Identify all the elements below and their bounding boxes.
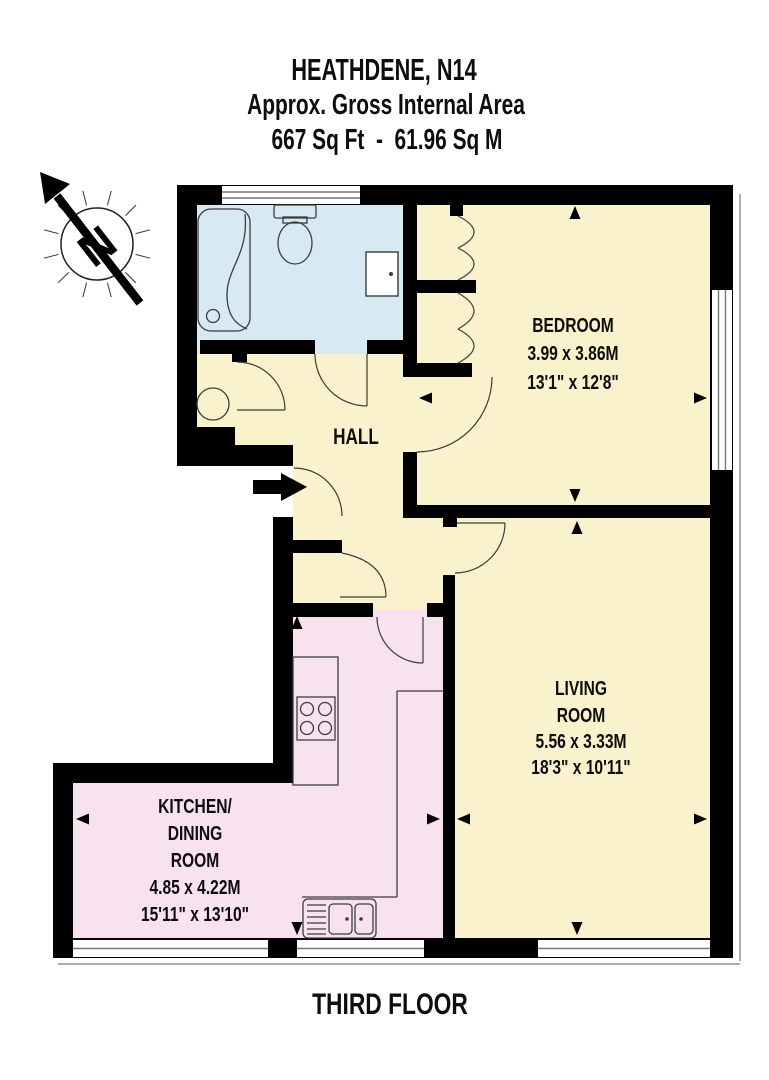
- floorplan-page: N HEATHDENE, N14 Approx. Gross Internal …: [0, 0, 769, 1080]
- living-room-window: [538, 940, 710, 957]
- living-room-size-imperial: 18'3" x 10'11": [531, 758, 630, 778]
- kitchen-window-left: [73, 940, 268, 957]
- bedroom-size-metric: 3.99 x 3.86M: [527, 344, 618, 364]
- living-room-label-1: LIVING: [555, 679, 607, 699]
- floorplan-drawing: N: [0, 0, 769, 1080]
- kitchen-floor-horizontal: [73, 783, 443, 940]
- hall-label: HALL: [333, 426, 379, 448]
- living-room-floor: [443, 518, 712, 940]
- kitchen-label-1: KITCHEN/: [158, 797, 232, 817]
- compass: N: [40, 172, 150, 303]
- plan-subtitle: Approx. Gross Internal Area: [247, 91, 525, 120]
- plan-title: HEATHDENE, N14: [291, 54, 476, 85]
- kitchen-label-3: ROOM: [171, 851, 220, 871]
- plan-area: 667 Sq Ft - 61.96 Sq M: [272, 126, 503, 155]
- living-room-size-metric: 5.56 x 3.33M: [535, 732, 626, 752]
- kitchen-size-metric: 4.85 x 4.22M: [149, 878, 240, 898]
- bedroom-window: [712, 290, 732, 470]
- kitchen-label-2: DINING: [168, 824, 223, 844]
- kitchen-window-right: [297, 940, 424, 957]
- living-room-label-2: ROOM: [557, 706, 606, 726]
- bedroom-label: BEDROOM: [532, 316, 613, 336]
- bathroom-window: [222, 186, 360, 204]
- floor-name: THIRD FLOOR: [312, 990, 468, 1020]
- basin: [366, 252, 398, 296]
- kitchen-size-imperial: 15'11" x 13'10": [141, 905, 249, 925]
- bedroom-size-imperial: 13'1" x 12'8": [527, 373, 619, 393]
